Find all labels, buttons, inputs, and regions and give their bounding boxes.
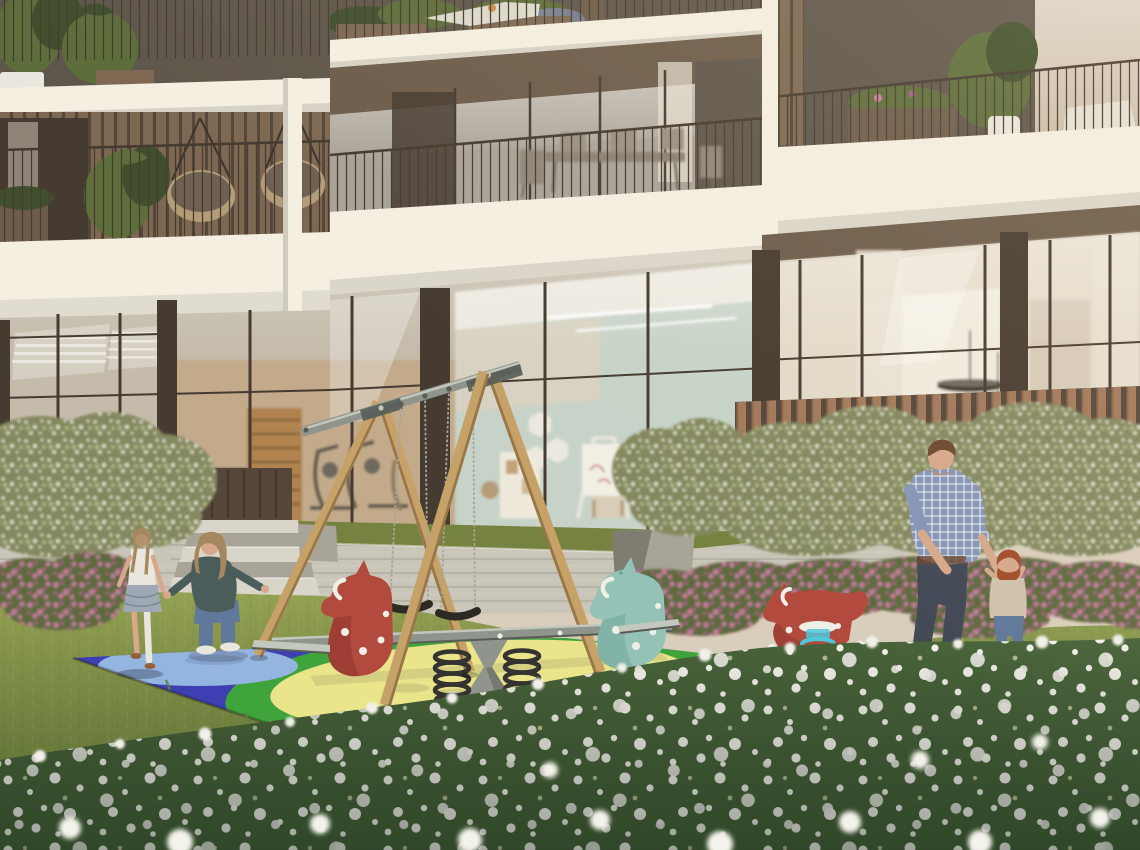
rendering-canvas: Photorealistic rendering of a residentia… — [0, 0, 1140, 850]
courtyard-rendering: Courtyard playground architectural rende… — [0, 0, 1140, 850]
sunlight-overlay — [0, 0, 1140, 850]
